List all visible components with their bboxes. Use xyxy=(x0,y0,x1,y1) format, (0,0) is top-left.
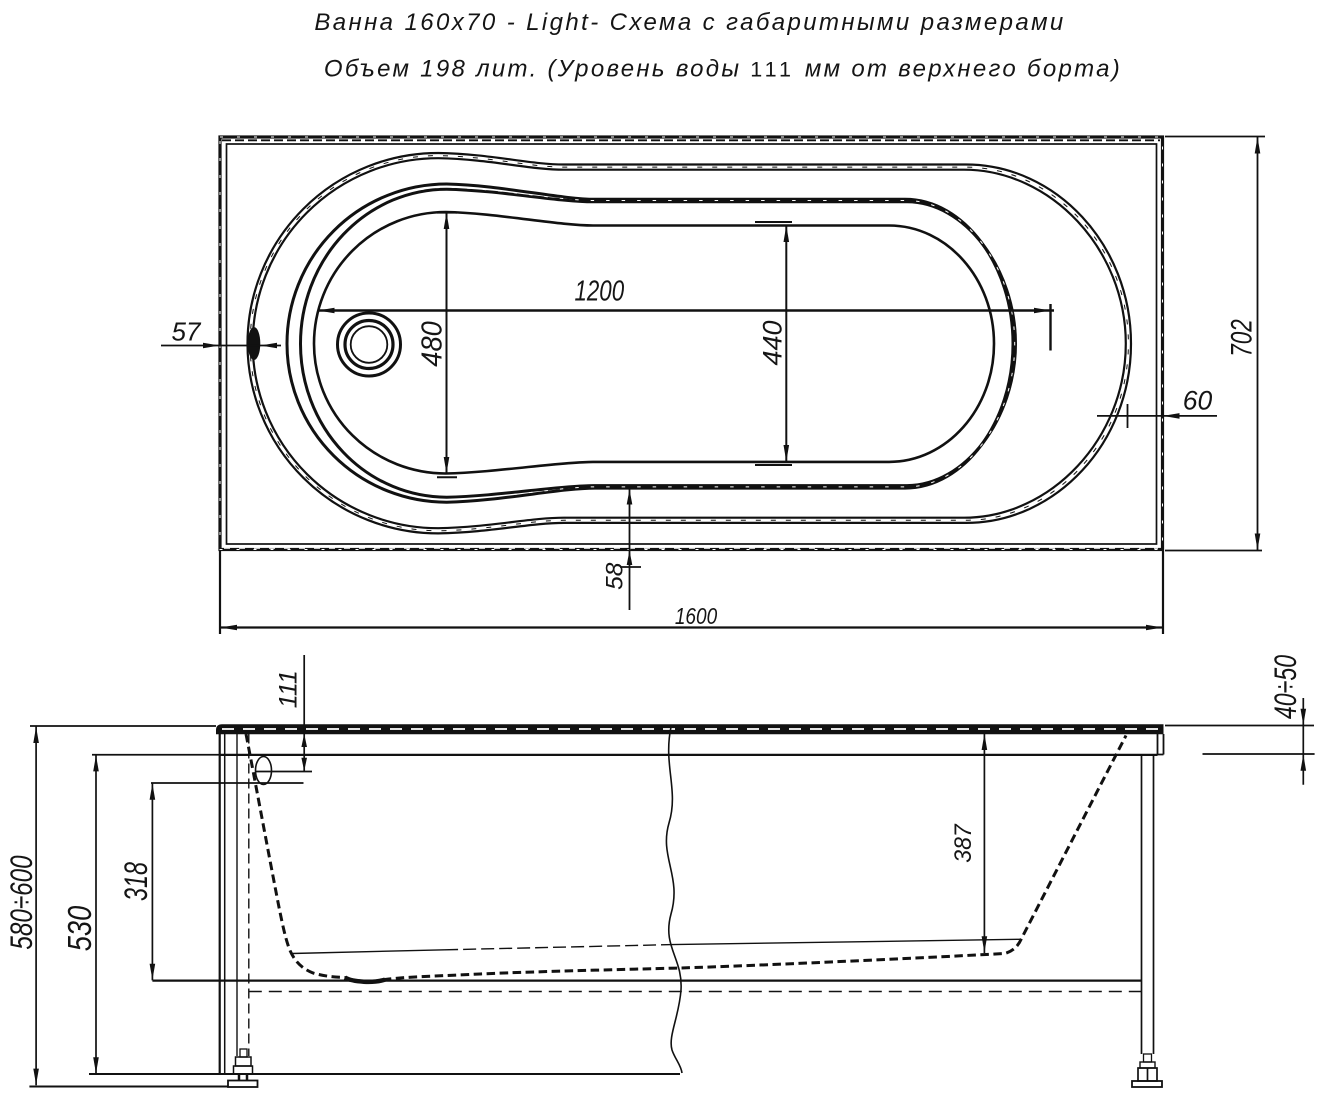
svg-text:1600: 1600 xyxy=(675,603,717,629)
svg-text:40÷50: 40÷50 xyxy=(1268,654,1303,719)
svg-text:702: 702 xyxy=(1224,319,1258,357)
svg-text:440: 440 xyxy=(758,320,788,365)
svg-text:Ванна 160х70 - Light- Схема с: Ванна 160х70 - Light- Схема с габаритным… xyxy=(314,9,1065,36)
svg-text:58: 58 xyxy=(601,562,628,590)
svg-text:530: 530 xyxy=(63,906,99,952)
svg-text:Объем 198 лит. (Уровень воды: Объем 198 лит. (Уровень воды 111 мм от в… xyxy=(324,56,1122,83)
svg-text:580÷600: 580÷600 xyxy=(4,855,39,950)
svg-text:111: 111 xyxy=(275,670,303,708)
svg-text:60: 60 xyxy=(1183,386,1213,416)
svg-text:318: 318 xyxy=(118,862,153,901)
svg-text:387: 387 xyxy=(950,823,977,862)
svg-text:1200: 1200 xyxy=(574,276,624,307)
svg-text:57: 57 xyxy=(172,316,202,346)
svg-text:480: 480 xyxy=(416,321,448,367)
